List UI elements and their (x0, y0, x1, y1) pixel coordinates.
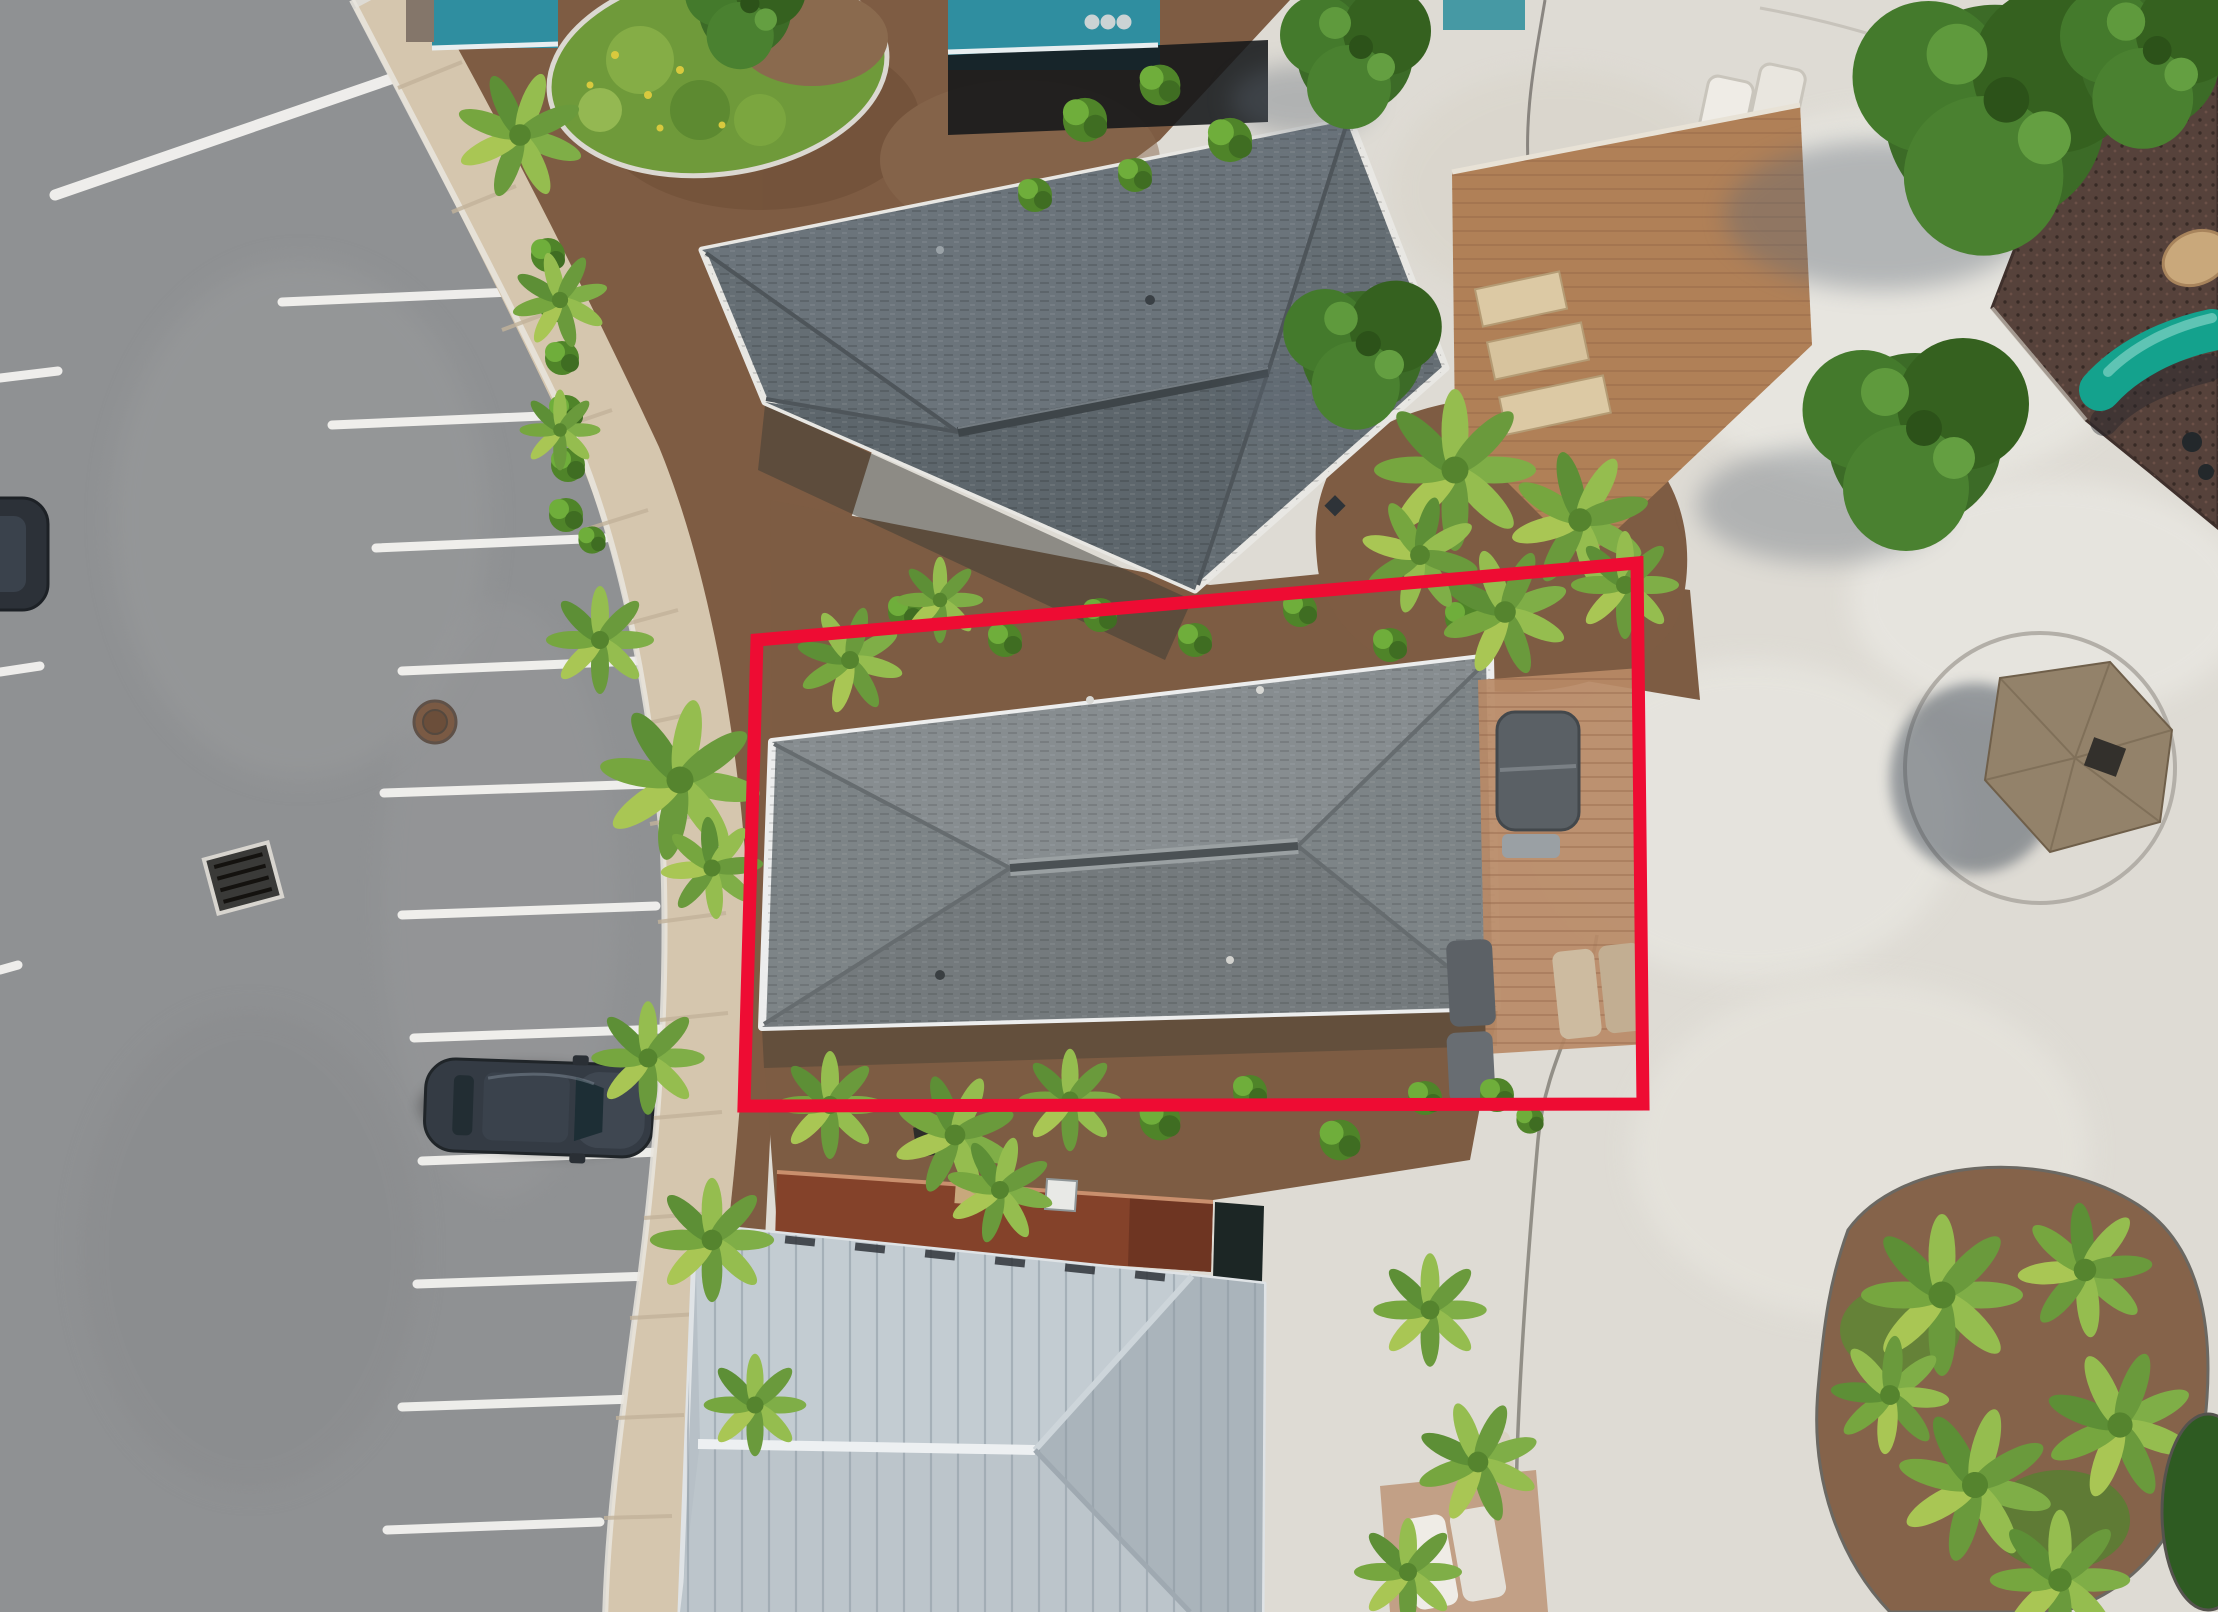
carousel-dot[interactable] (1101, 15, 1116, 30)
edge-parked-car (0, 498, 48, 610)
palm-island (1806, 1167, 2218, 1612)
aerial-photo (0, 0, 2218, 1612)
carousel-dots[interactable] (1085, 15, 1132, 30)
carousel-dot[interactable] (1117, 15, 1132, 30)
carousel-dot[interactable] (1085, 15, 1100, 30)
photo-viewer (0, 0, 2218, 1612)
manhole-cover (414, 701, 456, 743)
